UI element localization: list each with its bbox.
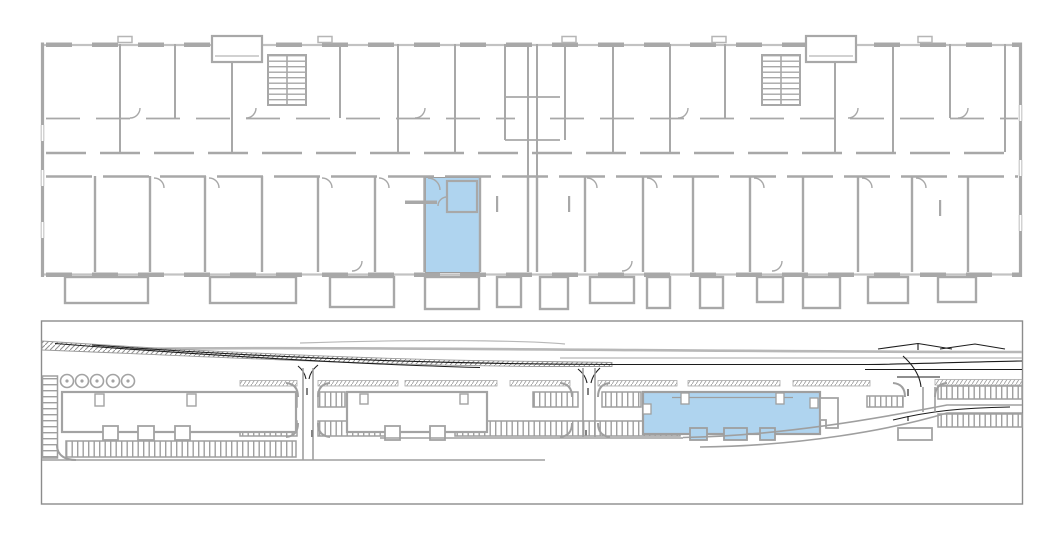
unit-divider-walls	[95, 176, 968, 272]
facade-top	[41, 43, 1022, 48]
side-wall-windows	[41, 105, 1023, 238]
selected-building[interactable]	[643, 392, 820, 440]
trees	[61, 375, 135, 388]
building-a	[62, 392, 296, 440]
balconies	[65, 277, 976, 309]
floor-plan	[41, 36, 1023, 309]
small-structure	[898, 428, 932, 440]
entrance-vestibule-right	[806, 36, 856, 62]
stairwell-right	[762, 55, 800, 105]
selected-unit-balcony	[425, 277, 479, 309]
site-plan	[42, 321, 1023, 504]
stairwell-left	[268, 55, 306, 105]
plan-viewer	[0, 0, 1062, 534]
door-arcs	[130, 108, 968, 271]
selected-unit-area[interactable]	[426, 178, 480, 273]
building-b	[347, 392, 487, 440]
architectural-drawing	[0, 0, 1062, 534]
entrance-vestibule-left	[212, 36, 262, 62]
selected-unit[interactable]	[426, 178, 480, 273]
upper-room-walls	[46, 44, 1018, 176]
corridor-walls	[46, 153, 1018, 177]
section-marks	[496, 196, 941, 216]
